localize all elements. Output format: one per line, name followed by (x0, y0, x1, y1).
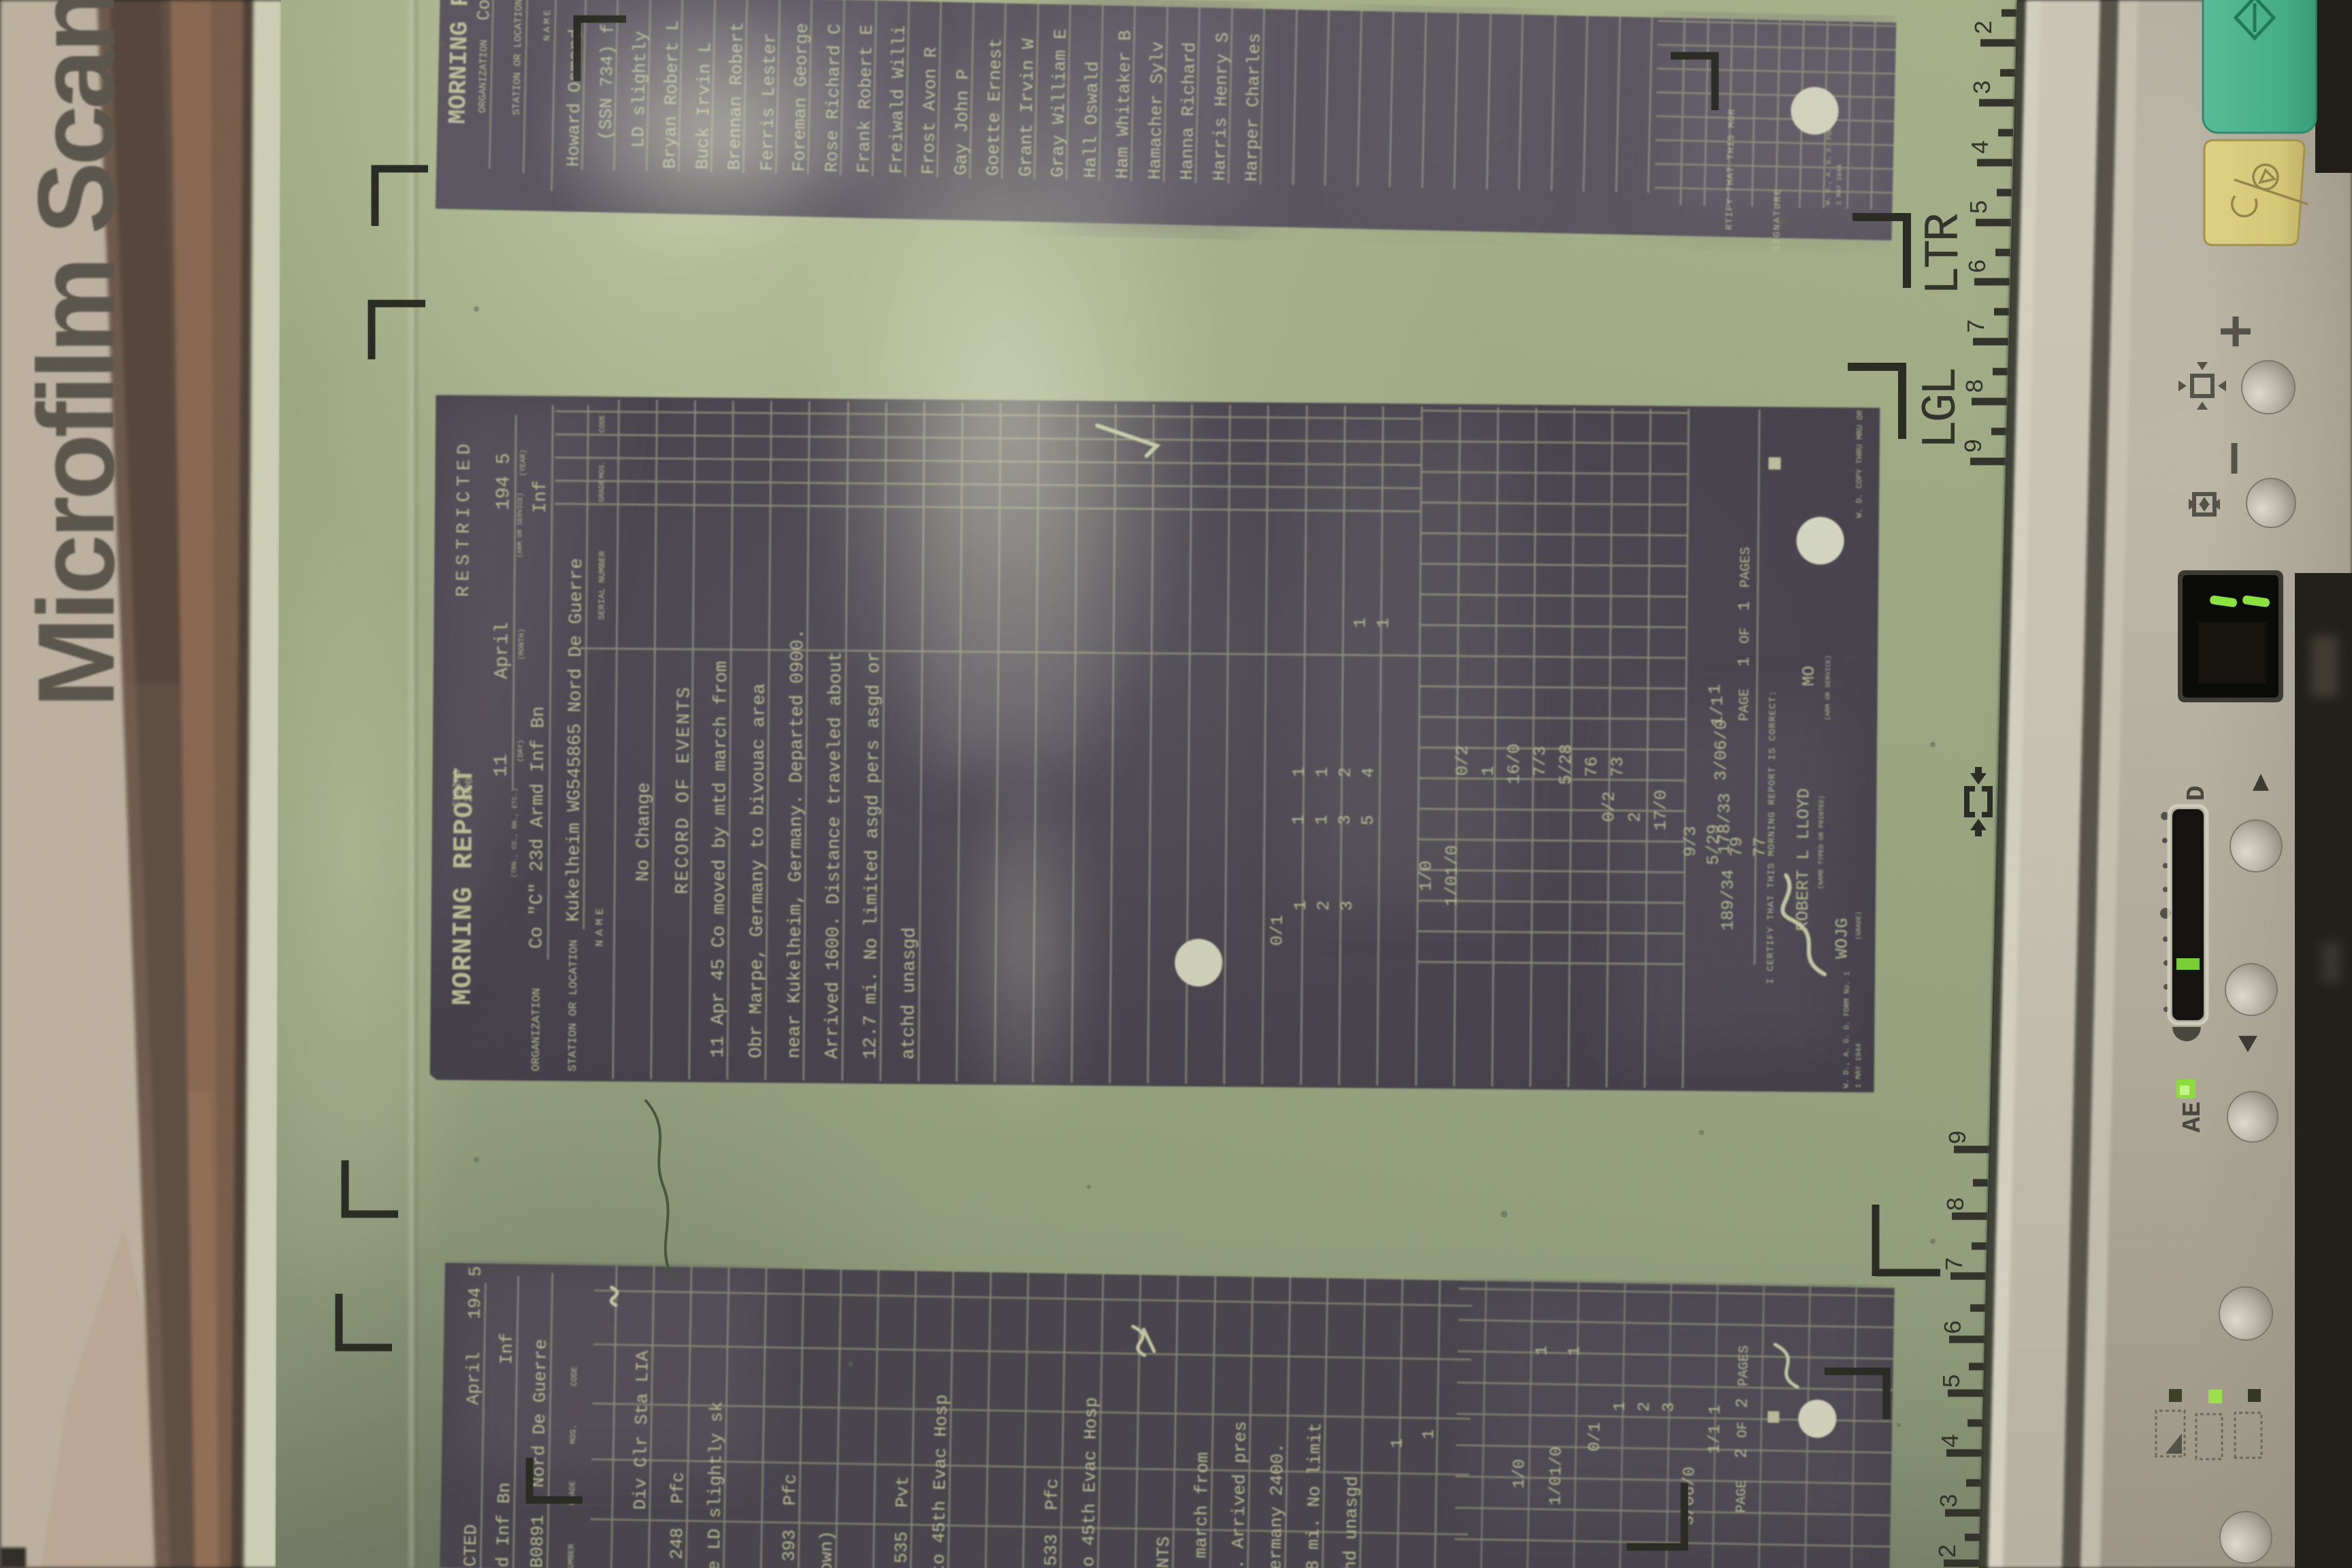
svg-text:AE: AE (2178, 1101, 2208, 1132)
svg-text:D: D (2183, 785, 2212, 801)
